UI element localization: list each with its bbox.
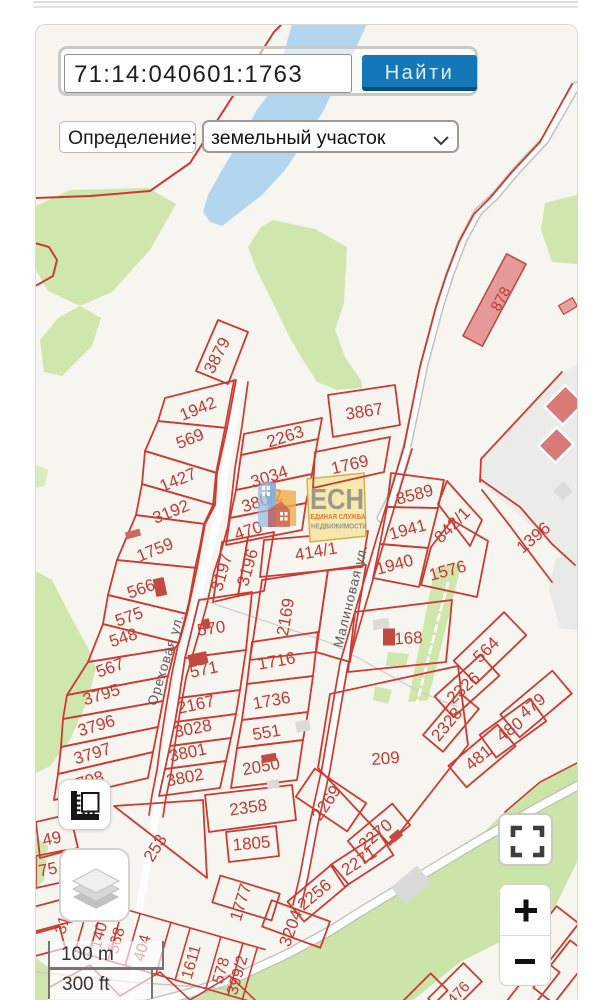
svg-text:75: 75: [37, 858, 59, 881]
svg-text:ЕДИНАЯ СЛУЖБА: ЕДИНАЯ СЛУЖБА: [311, 512, 366, 521]
svg-text:НЕДВИЖИМОСТИ: НЕДВИЖИМОСТИ: [311, 522, 367, 531]
svg-text:1805: 1805: [232, 832, 271, 854]
svg-text:209: 209: [371, 748, 401, 769]
svg-text:570: 570: [196, 617, 227, 640]
